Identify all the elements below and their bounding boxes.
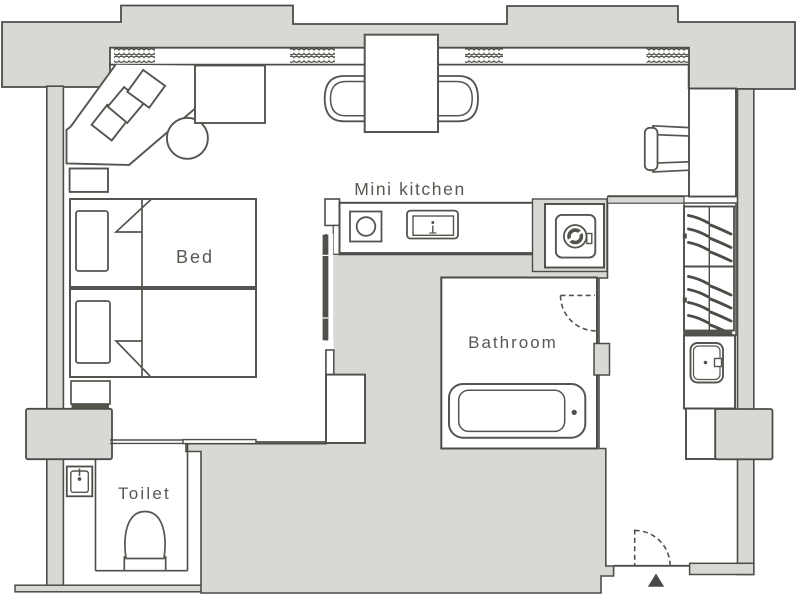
svg-text:Mini kitchen: Mini kitchen (354, 179, 466, 199)
svg-text:Bathroom: Bathroom (468, 333, 558, 352)
svg-text:Toilet: Toilet (118, 484, 171, 503)
svg-text:Bed: Bed (176, 247, 214, 267)
